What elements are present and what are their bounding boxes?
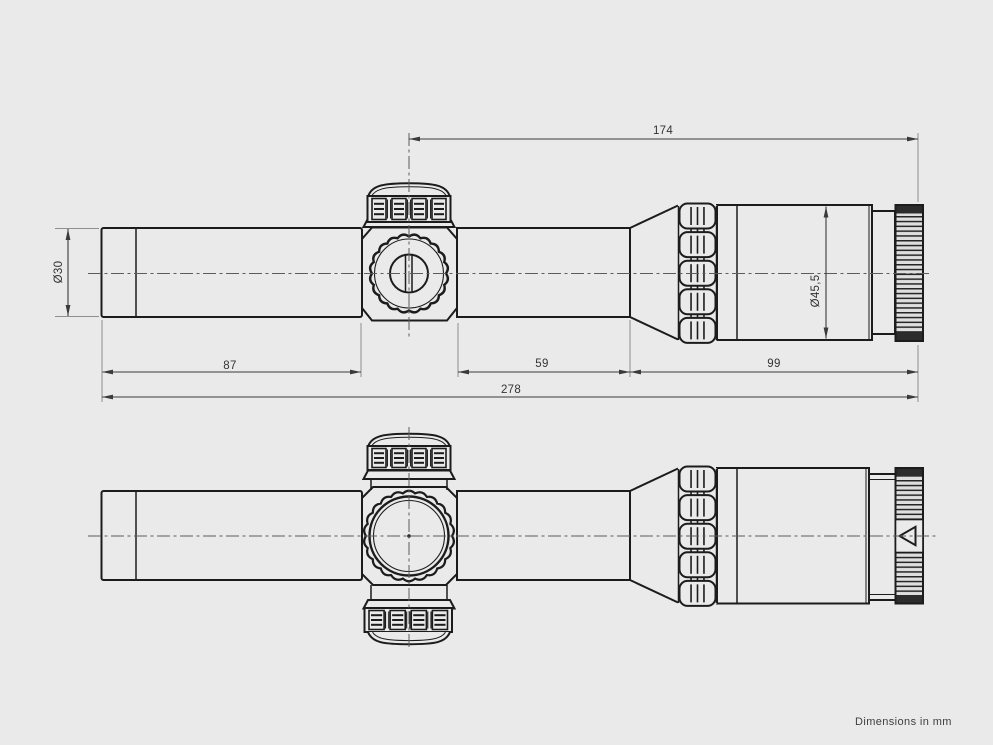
- dim-label-87: 87: [223, 360, 236, 372]
- dim-label-59: 59: [535, 358, 548, 370]
- dim-label-diameter-30: Ø30: [53, 261, 65, 284]
- side-view: [55, 133, 930, 402]
- dim-label-278: 278: [501, 384, 521, 396]
- dim-label-174: 174: [653, 125, 673, 137]
- technical-drawing-canvas: 174 Ø30 Ø45,5 87 59 99 278 Dimensions in…: [0, 0, 993, 745]
- units-note: Dimensions in mm: [855, 716, 952, 728]
- dimension-174: [409, 133, 918, 202]
- dim-label-99: 99: [767, 358, 780, 370]
- drawing-svg: [0, 0, 993, 745]
- top-view: [88, 427, 938, 650]
- dim-label-diameter-45-5: Ø45,5: [810, 275, 822, 308]
- dimension-99: [630, 345, 918, 402]
